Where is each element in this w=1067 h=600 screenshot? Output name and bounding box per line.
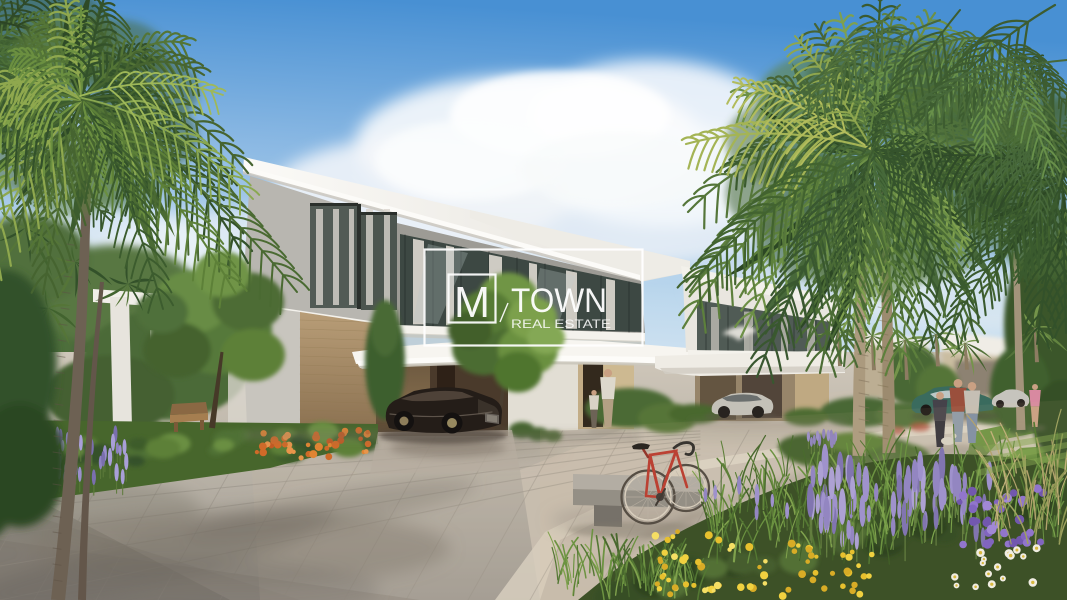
svg-text:M: M	[454, 278, 490, 327]
svg-text:TOWN: TOWN	[511, 282, 607, 320]
svg-text:REAL ESTATE: REAL ESTATE	[511, 319, 611, 331]
